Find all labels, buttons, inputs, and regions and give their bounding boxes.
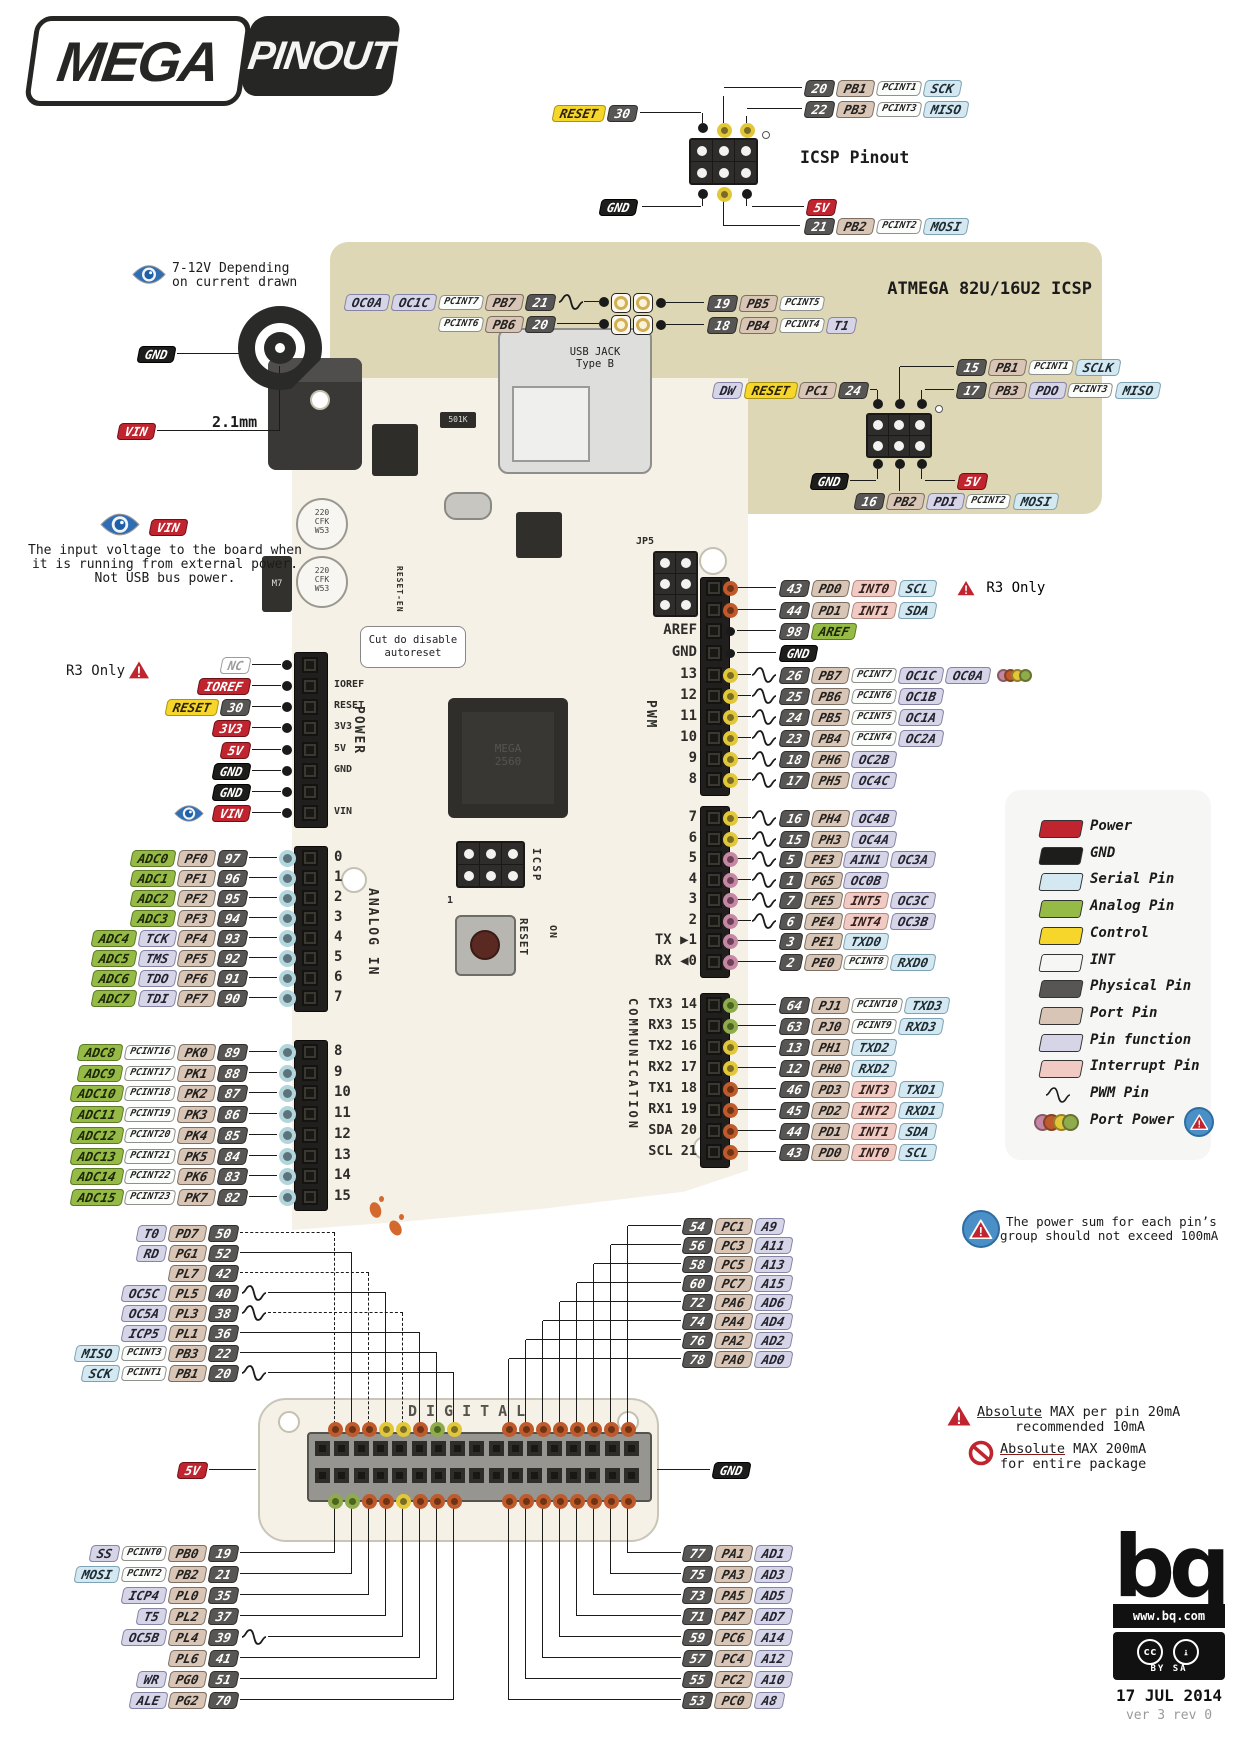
wire (249, 1051, 277, 1052)
pin-chip-pd1: PD1 (810, 602, 850, 619)
pwm-squiggle-icon (241, 1627, 267, 1647)
silk-text: 1 (447, 895, 453, 906)
icsp-header-pin (873, 441, 883, 451)
pin-row-71: 71PA7AD7 (683, 1606, 791, 1626)
pin-chip-ph6: PH6 (810, 751, 850, 768)
legend-label: Physical Pin (1090, 978, 1191, 994)
pin-chip-pe4: PE4 (803, 913, 843, 930)
jack-size-note: 2.1mm (212, 413, 257, 431)
pin-dot (723, 603, 738, 618)
wire (877, 469, 878, 479)
footer-version: ver 3 rev 0 (1103, 1708, 1235, 1723)
pin-row-vin: VIN (118, 421, 155, 441)
pin-dot (723, 998, 738, 1013)
pin-chip-77: 77 (681, 1545, 713, 1562)
pin-chip-rd: RD (136, 1245, 168, 1262)
pin-dot (895, 399, 905, 409)
pin-chip-pa1: PA1 (713, 1545, 753, 1562)
pin-chip-pg5: PG5 (803, 872, 843, 889)
pin-chip-adc2: ADC2 (130, 890, 177, 907)
connector-pin-center (454, 1472, 461, 1479)
svg-text:!: ! (963, 583, 970, 597)
pwm-squiggle-icon (751, 870, 777, 890)
pin-cell-center (710, 692, 718, 700)
wire (737, 838, 751, 839)
pin-dot (279, 1168, 296, 1185)
pin-chip-a14: A14 (753, 1629, 793, 1646)
pin-chip-int1: INT1 (850, 1123, 897, 1140)
connector-pin-center (435, 1445, 442, 1452)
wire (577, 1615, 681, 1616)
pin-row-v5: 5V (958, 471, 987, 491)
r3-only-left-note: R3 Only (66, 663, 125, 679)
pin-chip-pa3: PA3 (713, 1566, 753, 1583)
pin-cell-center (306, 994, 314, 1002)
connector-pin-center (628, 1472, 635, 1479)
connector-pin-center (416, 1445, 423, 1452)
icsp-header-pin (697, 146, 707, 156)
pin-chip-17: 17 (778, 772, 810, 789)
pin-chip-pl6: PL6 (168, 1650, 208, 1667)
wire (737, 737, 751, 738)
silk-text: 10 (680, 729, 697, 745)
pin-row-adc13: ADC13PCINT21PK584 (71, 1146, 247, 1166)
wire (240, 1594, 369, 1595)
pin-chip-pcint20: PCINT20 (124, 1128, 177, 1143)
pin-chip-sda: SDA (897, 602, 937, 619)
pin-chip-84: 84 (216, 1148, 248, 1165)
pin-dot (279, 870, 296, 887)
silk-text: 3 (334, 909, 342, 925)
icsp-header-pin (614, 318, 628, 332)
pin-dot (413, 1422, 428, 1437)
pin-cell-center (306, 1152, 314, 1160)
wire (577, 1282, 681, 1283)
pin-dot (723, 914, 738, 929)
connector-pin-center (473, 1472, 480, 1479)
pin-chip-sclk: SCLK (1074, 359, 1121, 376)
mounting-hole (310, 390, 330, 410)
pin-chip-pd3: PD3 (810, 1081, 850, 1098)
legend-label: Power (1090, 818, 1132, 834)
voltage-regulator (372, 424, 418, 476)
pin-chip-6: 6 (778, 913, 803, 930)
icsp-header-pin (741, 168, 751, 178)
pin-chip-ad3: AD3 (753, 1566, 793, 1583)
pin-row-adc10: ADC10PCINT18PK287 (71, 1083, 247, 1103)
wire (368, 1273, 369, 1429)
wire (921, 390, 922, 399)
pin-row-54: 54PC1A9 (683, 1216, 784, 1236)
pin-dot (656, 320, 666, 330)
silk-text: GND (334, 764, 352, 775)
pin-row-75: 75PA3AD3 (683, 1564, 791, 1584)
wire (611, 1573, 681, 1574)
wire (737, 779, 751, 780)
wire (249, 1113, 277, 1114)
pin-chip-gnd: GND (711, 1462, 751, 1479)
pin-cell-center (710, 1085, 718, 1093)
connector-pin-center (319, 1445, 326, 1452)
connector-pin-center (435, 1472, 442, 1479)
autoreset-callout: Cut do disable autoreset (360, 626, 466, 668)
pin-chip-pa2: PA2 (713, 1332, 753, 1349)
pin-cell-center (306, 894, 314, 902)
pin-chip-30: 30 (219, 699, 251, 716)
pin-chip-pcint7: PCINT7 (850, 668, 897, 683)
abs-max-pin-underlined: Absolute (977, 1404, 1042, 1420)
connector-pin-center (531, 1445, 538, 1452)
icsp-header-pin (697, 168, 707, 178)
wire (543, 1657, 681, 1658)
pin-chip-82: 82 (216, 1189, 248, 1206)
pin-cell-center (710, 876, 718, 884)
wire (249, 917, 277, 918)
pin-chip-ale: ALE (128, 1692, 168, 1709)
pwm-squiggle-icon (241, 1363, 267, 1383)
pin-chip-adc3: ADC3 (130, 910, 177, 927)
pin-chip-71: 71 (681, 1608, 713, 1625)
pin-chip-56: 56 (681, 1237, 713, 1254)
pin-dot (553, 1494, 568, 1509)
pin-dot (279, 910, 296, 927)
wire (611, 1244, 681, 1245)
pwm-squiggle-icon (751, 829, 777, 849)
pin-cell-center (306, 934, 314, 942)
pin-chip-ad6: AD6 (753, 1294, 793, 1311)
warning-circle-icon: ! (1184, 1107, 1214, 1137)
silk-text: TX3 14 (648, 996, 697, 1012)
pin-chip-a10: A10 (753, 1671, 793, 1688)
pin-chip-19: 19 (706, 295, 738, 312)
wire (268, 1312, 403, 1313)
pin-dot (723, 581, 738, 596)
pin-chip-icp5: ICP5 (121, 1325, 168, 1342)
pwm-squiggle-icon (751, 707, 777, 727)
pin-row-60: 60PC7A15 (683, 1273, 791, 1293)
pwm-squiggle-icon (751, 728, 777, 748)
pin-dot (723, 1145, 738, 1160)
pin-chip-pb1: PB1 (168, 1365, 208, 1382)
pin-dot (587, 1494, 602, 1509)
wire (526, 1678, 681, 1679)
pin-dot (282, 702, 292, 712)
wire (584, 301, 599, 302)
pin-chip-scl: SCL (897, 580, 937, 597)
pin-row-adc1: ADC1PF196 (131, 868, 247, 888)
pin-row-pl6: PL641 (169, 1648, 238, 1668)
wire (268, 1636, 403, 1637)
pin-chip-pcint22: PCINT22 (124, 1169, 177, 1184)
logo-mega: MEGA (24, 16, 253, 106)
pin-cell-center (306, 1172, 314, 1180)
pin-row-reset: RESET30 (166, 697, 250, 717)
pin-row-46: 46PD3INT3TXD1 (780, 1079, 943, 1099)
pin-dot (447, 1422, 462, 1437)
pin-dot (587, 1422, 602, 1437)
pin-chip-58: 58 (681, 1256, 713, 1273)
pin-chip-5v: 5V (805, 199, 837, 216)
icsp-header-pin (894, 441, 904, 451)
pin-chip-24: 24 (837, 382, 869, 399)
pin-row-6: 6PE4INT4OC3B (780, 911, 935, 931)
wire (702, 198, 703, 206)
wire (525, 1501, 526, 1679)
resistor-501k: 501K (440, 412, 476, 428)
pin-chip-pd1: PD1 (810, 1123, 850, 1140)
pin-chip-miso: MISO (1114, 382, 1161, 399)
pin-chip-pcint7: PCINT7 (438, 295, 485, 310)
pin-chip-12: 12 (778, 1060, 810, 1077)
legend-label: Control (1090, 925, 1149, 941)
pin-row-pl7: PL742 (169, 1263, 238, 1283)
legend-label: Interrupt Pin (1090, 1058, 1200, 1074)
pin-chip-pf7: PF7 (177, 990, 217, 1007)
pin-cell-center (710, 584, 718, 592)
pin-chip-pd2: PD2 (810, 1102, 850, 1119)
pin-row-2: 2PE0PCINT8RXD0 (780, 952, 936, 972)
wire (419, 1333, 420, 1429)
pin-dot (430, 1422, 445, 1437)
reset-silk: RESET (517, 918, 530, 956)
wire (737, 879, 751, 880)
pin-row-nc: NC (221, 655, 250, 675)
pin-chip-ph5: PH5 (810, 772, 850, 789)
pin-chip-pcint2: PCINT2 (965, 494, 1012, 509)
pin-row-sck: SCKPCINT1PB120 (82, 1363, 238, 1383)
pin-dot (723, 1124, 738, 1139)
silk-text: 4 (689, 871, 697, 887)
atmega-panel-title: ATMEGA 82U/16U2 ICSP (830, 279, 1092, 299)
wire (737, 1067, 776, 1068)
wire (249, 877, 277, 878)
wire (737, 1130, 776, 1131)
wire (737, 1004, 776, 1005)
pin-chip-sck: SCK (922, 80, 962, 97)
pin-row-5: 5PE3AIN1OC3A (780, 849, 935, 869)
pin-chip-pk1: PK1 (177, 1065, 217, 1082)
legend-swatch-ser (1038, 873, 1083, 891)
pin-chip-44: 44 (778, 602, 810, 619)
pin-dot (282, 745, 292, 755)
pin-row-72: 72PA6AD6 (683, 1292, 791, 1312)
wire (368, 1501, 369, 1595)
pin-chip-pcint3: PCINT3 (1067, 383, 1114, 398)
vin-note-line1: The input voltage to the board when (15, 543, 315, 558)
silk-text: 5 (334, 949, 342, 965)
pin-chip-25: 25 (778, 688, 810, 705)
pin-chip-pc7: PC7 (713, 1275, 753, 1292)
pin-row-oc5b: OC5BPL439 (122, 1627, 238, 1647)
logo-pinout: PINOUT (240, 16, 401, 96)
pin-chip-int0: INT0 (850, 1144, 897, 1161)
pin-chip-ad7: AD7 (753, 1608, 793, 1625)
icsp-header-pin (719, 146, 729, 156)
pin-chip-57: 57 (681, 1650, 713, 1667)
pin-dot (717, 187, 732, 202)
pin-chip-pg1: PG1 (168, 1245, 208, 1262)
connector-pin-center (551, 1445, 558, 1452)
pin-dot (279, 1148, 296, 1165)
pin-chip-83: 83 (216, 1168, 248, 1185)
pin-row-wr: WRPG051 (137, 1669, 238, 1689)
pin-chip-adc8: ADC8 (77, 1044, 124, 1061)
pin-dot (723, 773, 738, 788)
icsp-header-pin (915, 441, 925, 451)
pin-chip-pk0: PK0 (177, 1044, 217, 1061)
pin-row-adc0: ADC0PF097 (131, 848, 247, 868)
usb-controller-chip (516, 512, 562, 558)
cc-license-badge: cc ꭵ BY SA (1113, 1632, 1225, 1680)
wire (351, 1501, 352, 1574)
abs-max-pkg-underlined: Absolute (1000, 1441, 1065, 1457)
wire (559, 1501, 560, 1637)
pin-row-gnd: GND (811, 471, 848, 491)
mcu-chip-label: MEGA 2560 (462, 712, 554, 804)
pin-cell-center (710, 1127, 718, 1135)
connector-pin-center (473, 1445, 480, 1452)
wire (628, 1552, 681, 1553)
wire (702, 113, 703, 123)
pin-row-adc7: ADC7TDIPF790 (92, 988, 247, 1008)
pin-chip-pa5: PA5 (713, 1587, 753, 1604)
pwm-squiggle-icon (751, 808, 777, 828)
connector-pin-center (396, 1445, 403, 1452)
pin-hole (762, 131, 770, 139)
silk-text: 11 (334, 1105, 351, 1121)
pin-chip-21: 21 (803, 218, 835, 235)
pin-chip-pe3: PE3 (803, 851, 843, 868)
wire (900, 366, 954, 367)
pin-row-adc5: ADC5TMSPF592 (92, 948, 247, 968)
pin-dot (279, 1044, 296, 1061)
wire (334, 1233, 335, 1429)
logo-pinout-text: PINOUT (245, 34, 396, 79)
silk-text: TX ▶1 (655, 932, 697, 948)
pin-chip-88: 88 (216, 1065, 248, 1082)
pin-chip-92: 92 (216, 950, 248, 967)
pin-chip-oc0b: OC0B (842, 872, 889, 889)
pin-chip-pb3: PB3 (987, 382, 1027, 399)
pin-chip-pb6: PB6 (810, 688, 850, 705)
icsp-header-pin (486, 871, 496, 881)
silk-text: TX2 16 (648, 1038, 697, 1054)
pin-cell-center (306, 724, 314, 732)
pin-chip-oc0a: OC0A (343, 294, 390, 311)
wire (610, 1501, 611, 1574)
pin-dot (519, 1494, 534, 1509)
pin-row-25: 25PB6PCINT6OC1B (780, 686, 943, 706)
pwm-squiggle-icon (241, 1283, 267, 1303)
wire (252, 749, 281, 750)
pin-row-adc2: ADC2PF295 (131, 888, 247, 908)
pin-chip-pb7: PB7 (810, 667, 850, 684)
abs-max-pin-rest: MAX per pin 20mA (1042, 1404, 1180, 1420)
pin-chip-pcint6: PCINT6 (438, 317, 485, 332)
pin-row-mosi: MOSIPCINT2PB221 (75, 1564, 238, 1584)
pin-row-53: 53PC0A8 (683, 1690, 784, 1710)
pin-cell-center (710, 627, 718, 635)
pin-chip-nc: NC (219, 657, 251, 674)
communication-title-silk: COMMUNICATION (626, 998, 640, 1131)
pin-chip-43: 43 (778, 580, 810, 597)
pin-chip-pb2: PB2 (835, 218, 875, 235)
legend-swatch-int (1038, 954, 1083, 972)
pin-chip-aref: AREF (810, 623, 857, 640)
silk-text: 8 (689, 771, 697, 787)
reset-button-cap (470, 930, 500, 960)
wire (525, 1340, 526, 1429)
pin-dot (282, 766, 292, 776)
wire (526, 1339, 681, 1340)
silk-text: 11 (680, 708, 697, 724)
pin-chip-pcint1: PCINT1 (121, 1366, 168, 1381)
pin-chip-pcint18: PCINT18 (124, 1086, 177, 1101)
wire (877, 390, 878, 399)
pin-chip-38: 38 (207, 1305, 239, 1322)
pin-cell-center (710, 896, 718, 904)
wire (249, 1092, 277, 1093)
pin-chip-pc3: PC3 (713, 1237, 753, 1254)
pin-chip-adc9: ADC9 (77, 1065, 124, 1082)
wire (666, 302, 704, 303)
pin-chip-vin: VIN (212, 805, 252, 822)
pin-row-row_15: 15PB1PCINT1SCLK (957, 357, 1120, 377)
pin-chip-pg2: PG2 (168, 1692, 208, 1709)
silk-text: SCL 21 (648, 1143, 697, 1159)
pin-chip-pcint4: PCINT4 (850, 731, 897, 746)
wire (559, 1302, 560, 1429)
pin-chip-72: 72 (681, 1294, 713, 1311)
pin-chip-1: 1 (778, 872, 803, 889)
pin-row-row20: 20PB1PCINT1SCK (805, 78, 961, 98)
pin-chip-oc5c: OC5C (121, 1285, 168, 1302)
pin-chip-50: 50 (207, 1225, 239, 1242)
usb-jack-label: USB JACK Type B (545, 346, 645, 370)
legend-swatch-adc (1038, 900, 1083, 918)
pin-dot (698, 189, 708, 199)
silk-text: AREF (663, 622, 697, 638)
vin-note-line2: it is running from external power. (15, 557, 315, 572)
pin-row-adc3: ADC3PF394 (131, 908, 247, 928)
pin-row-adc12: ADC12PCINT20PK485 (71, 1125, 247, 1145)
pin-chip-gnd: GND (810, 473, 850, 490)
icsp-header-pin (660, 600, 670, 610)
pwm-squiggle-icon (558, 292, 584, 312)
pin-chip-int1: INT1 (850, 602, 897, 619)
pin-chip-20: 20 (207, 1365, 239, 1382)
pin-chip-oc3b: OC3B (890, 913, 937, 930)
pin-row-5v: 5V (221, 740, 250, 760)
pin-cell-center (710, 776, 718, 784)
pin-chip-59: 59 (681, 1629, 713, 1646)
pin-dot (279, 990, 296, 1007)
wire (627, 1226, 628, 1429)
wire (747, 108, 802, 109)
pin-chip-ph1: PH1 (810, 1039, 850, 1056)
icsp-header-pin (508, 849, 518, 859)
pin-row-43: 43PD0INT0SCL (780, 1142, 935, 1162)
pin-dot (621, 1494, 636, 1509)
pin-chip-pb4: PB4 (738, 317, 778, 334)
pin-chip-41: 41 (207, 1650, 239, 1667)
pin-dot (279, 970, 296, 987)
pin-cell-center (710, 1001, 718, 1009)
pin-chip-int2: INT2 (850, 1102, 897, 1119)
pin-chip-pa4: PA4 (713, 1313, 753, 1330)
silk-text: RX3 15 (648, 1017, 697, 1033)
pin-row-row21: 21PB2PCINT2MOSI (805, 216, 968, 236)
